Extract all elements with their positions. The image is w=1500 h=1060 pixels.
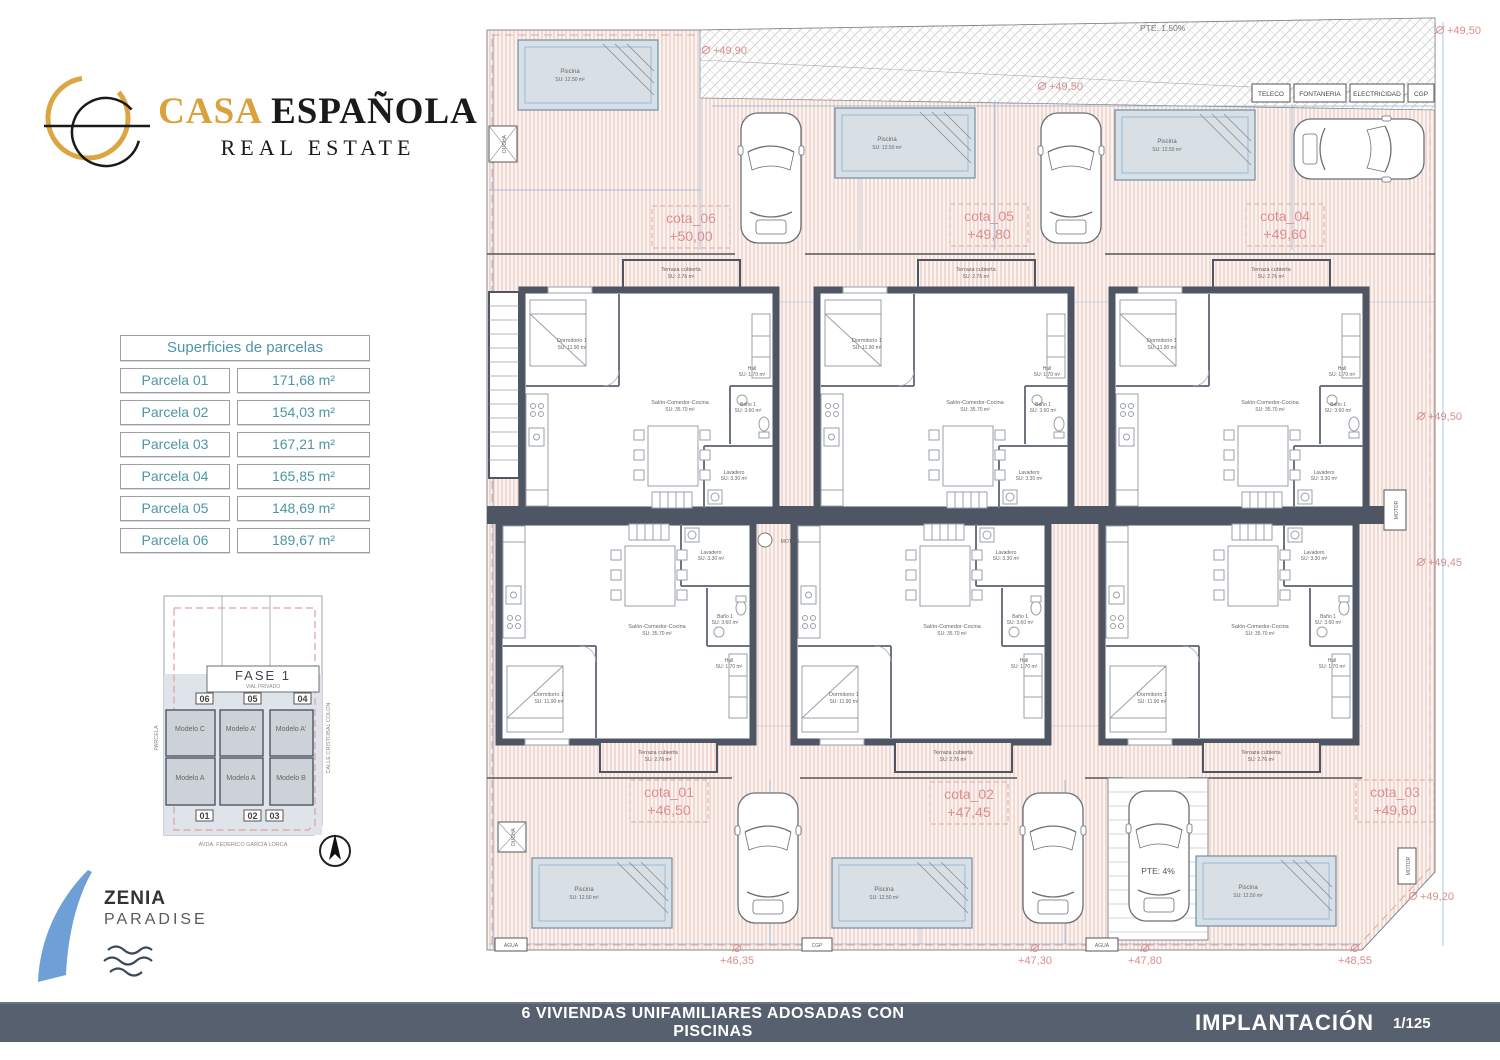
svg-text:cota_04: cota_04	[1260, 208, 1310, 224]
svg-text:+49,60: +49,60	[1373, 802, 1416, 818]
svg-text:DUCHA: DUCHA	[502, 134, 508, 152]
svg-text:cota_02: cota_02	[944, 786, 994, 802]
ramp-slope-label: PTE: 4%	[1141, 866, 1175, 876]
house-unit-06	[522, 260, 776, 510]
svg-text:MOTOR: MOTOR	[1394, 500, 1400, 519]
svg-text:+47,30: +47,30	[1018, 955, 1052, 967]
svg-text:+48,55: +48,55	[1338, 955, 1372, 967]
title-block: 6 VIVIENDAS UNIFAMILIARES ADOSADAS CON P…	[0, 1002, 1500, 1042]
house-unit-05	[817, 260, 1071, 510]
svg-text:MOTOR: MOTOR	[1406, 856, 1412, 875]
svg-text:+49,50: +49,50	[1049, 81, 1083, 93]
house-unit-03	[1102, 522, 1356, 772]
utility-fontaneria: FONTANERIA	[1299, 91, 1341, 98]
sheet-scale: 1/125	[1393, 1015, 1431, 1032]
svg-text:+49,90: +49,90	[713, 45, 747, 57]
svg-text:+47,80: +47,80	[1128, 955, 1162, 967]
svg-text:+50,00: +50,00	[669, 228, 712, 244]
house-unit-04	[1112, 260, 1366, 510]
exterior-stair	[489, 292, 519, 478]
svg-text:+49,20: +49,20	[1420, 891, 1454, 903]
svg-text:AGUA: AGUA	[504, 943, 519, 949]
svg-text:cota_03: cota_03	[1370, 784, 1420, 800]
sheet: CASA ESPAÑOLA REAL ESTATE Superficies de…	[0, 0, 1500, 1060]
svg-text:+49,50: +49,50	[1447, 25, 1481, 37]
svg-text:+49,45: +49,45	[1428, 557, 1462, 569]
street-slope-label: PTE. 1.50%	[1140, 23, 1186, 33]
svg-text:DUCHA: DUCHA	[511, 827, 517, 845]
svg-text:CGP: CGP	[812, 943, 824, 949]
level-mark: +49,50	[1436, 25, 1481, 37]
utility-cgp: CGP	[1414, 91, 1428, 98]
utility-electricidad: ELECTRICIDAD	[1353, 91, 1401, 98]
svg-text:cota_06: cota_06	[666, 210, 716, 226]
house-unit-02	[794, 522, 1048, 772]
svg-text:+46,35: +46,35	[720, 955, 754, 967]
svg-text:MOTOR: MOTOR	[781, 539, 800, 545]
svg-text:+46,50: +46,50	[647, 802, 690, 818]
svg-text:+47,45: +47,45	[947, 804, 990, 820]
svg-text:+49,60: +49,60	[1263, 226, 1306, 242]
project-title: 6 VIVIENDAS UNIFAMILIARES ADOSADAS CON P…	[493, 1005, 933, 1041]
svg-text:+49,80: +49,80	[967, 226, 1010, 242]
sheet-name: IMPLANTACIÓN	[1195, 1010, 1374, 1036]
house-unit-01	[499, 522, 753, 772]
svg-text:cota_01: cota_01	[644, 784, 694, 800]
utility-teleco: TELECO	[1258, 91, 1284, 98]
site-plan: Piscina SU: 12.50 m² Terraza cubierta SU…	[0, 0, 1500, 1060]
svg-text:AGUA: AGUA	[1095, 943, 1110, 949]
svg-text:cota_05: cota_05	[964, 208, 1014, 224]
svg-text:+49,50: +49,50	[1428, 411, 1462, 423]
